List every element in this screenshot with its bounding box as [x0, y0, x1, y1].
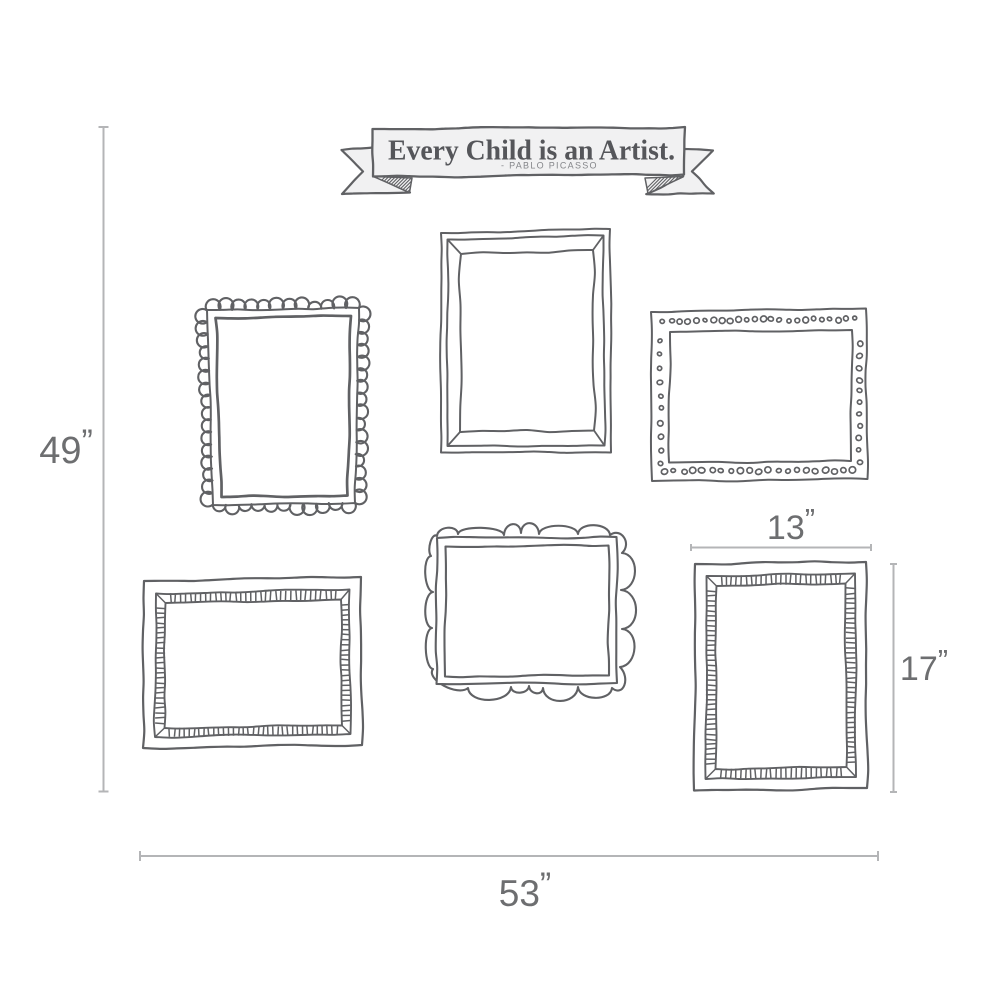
svg-text:53”: 53” — [499, 866, 551, 914]
svg-text:- PABLO PICASSO: - PABLO PICASSO — [501, 161, 598, 171]
svg-text:49”: 49” — [39, 423, 93, 472]
svg-text:17”: 17” — [900, 643, 948, 688]
svg-text:13”: 13” — [767, 502, 815, 547]
